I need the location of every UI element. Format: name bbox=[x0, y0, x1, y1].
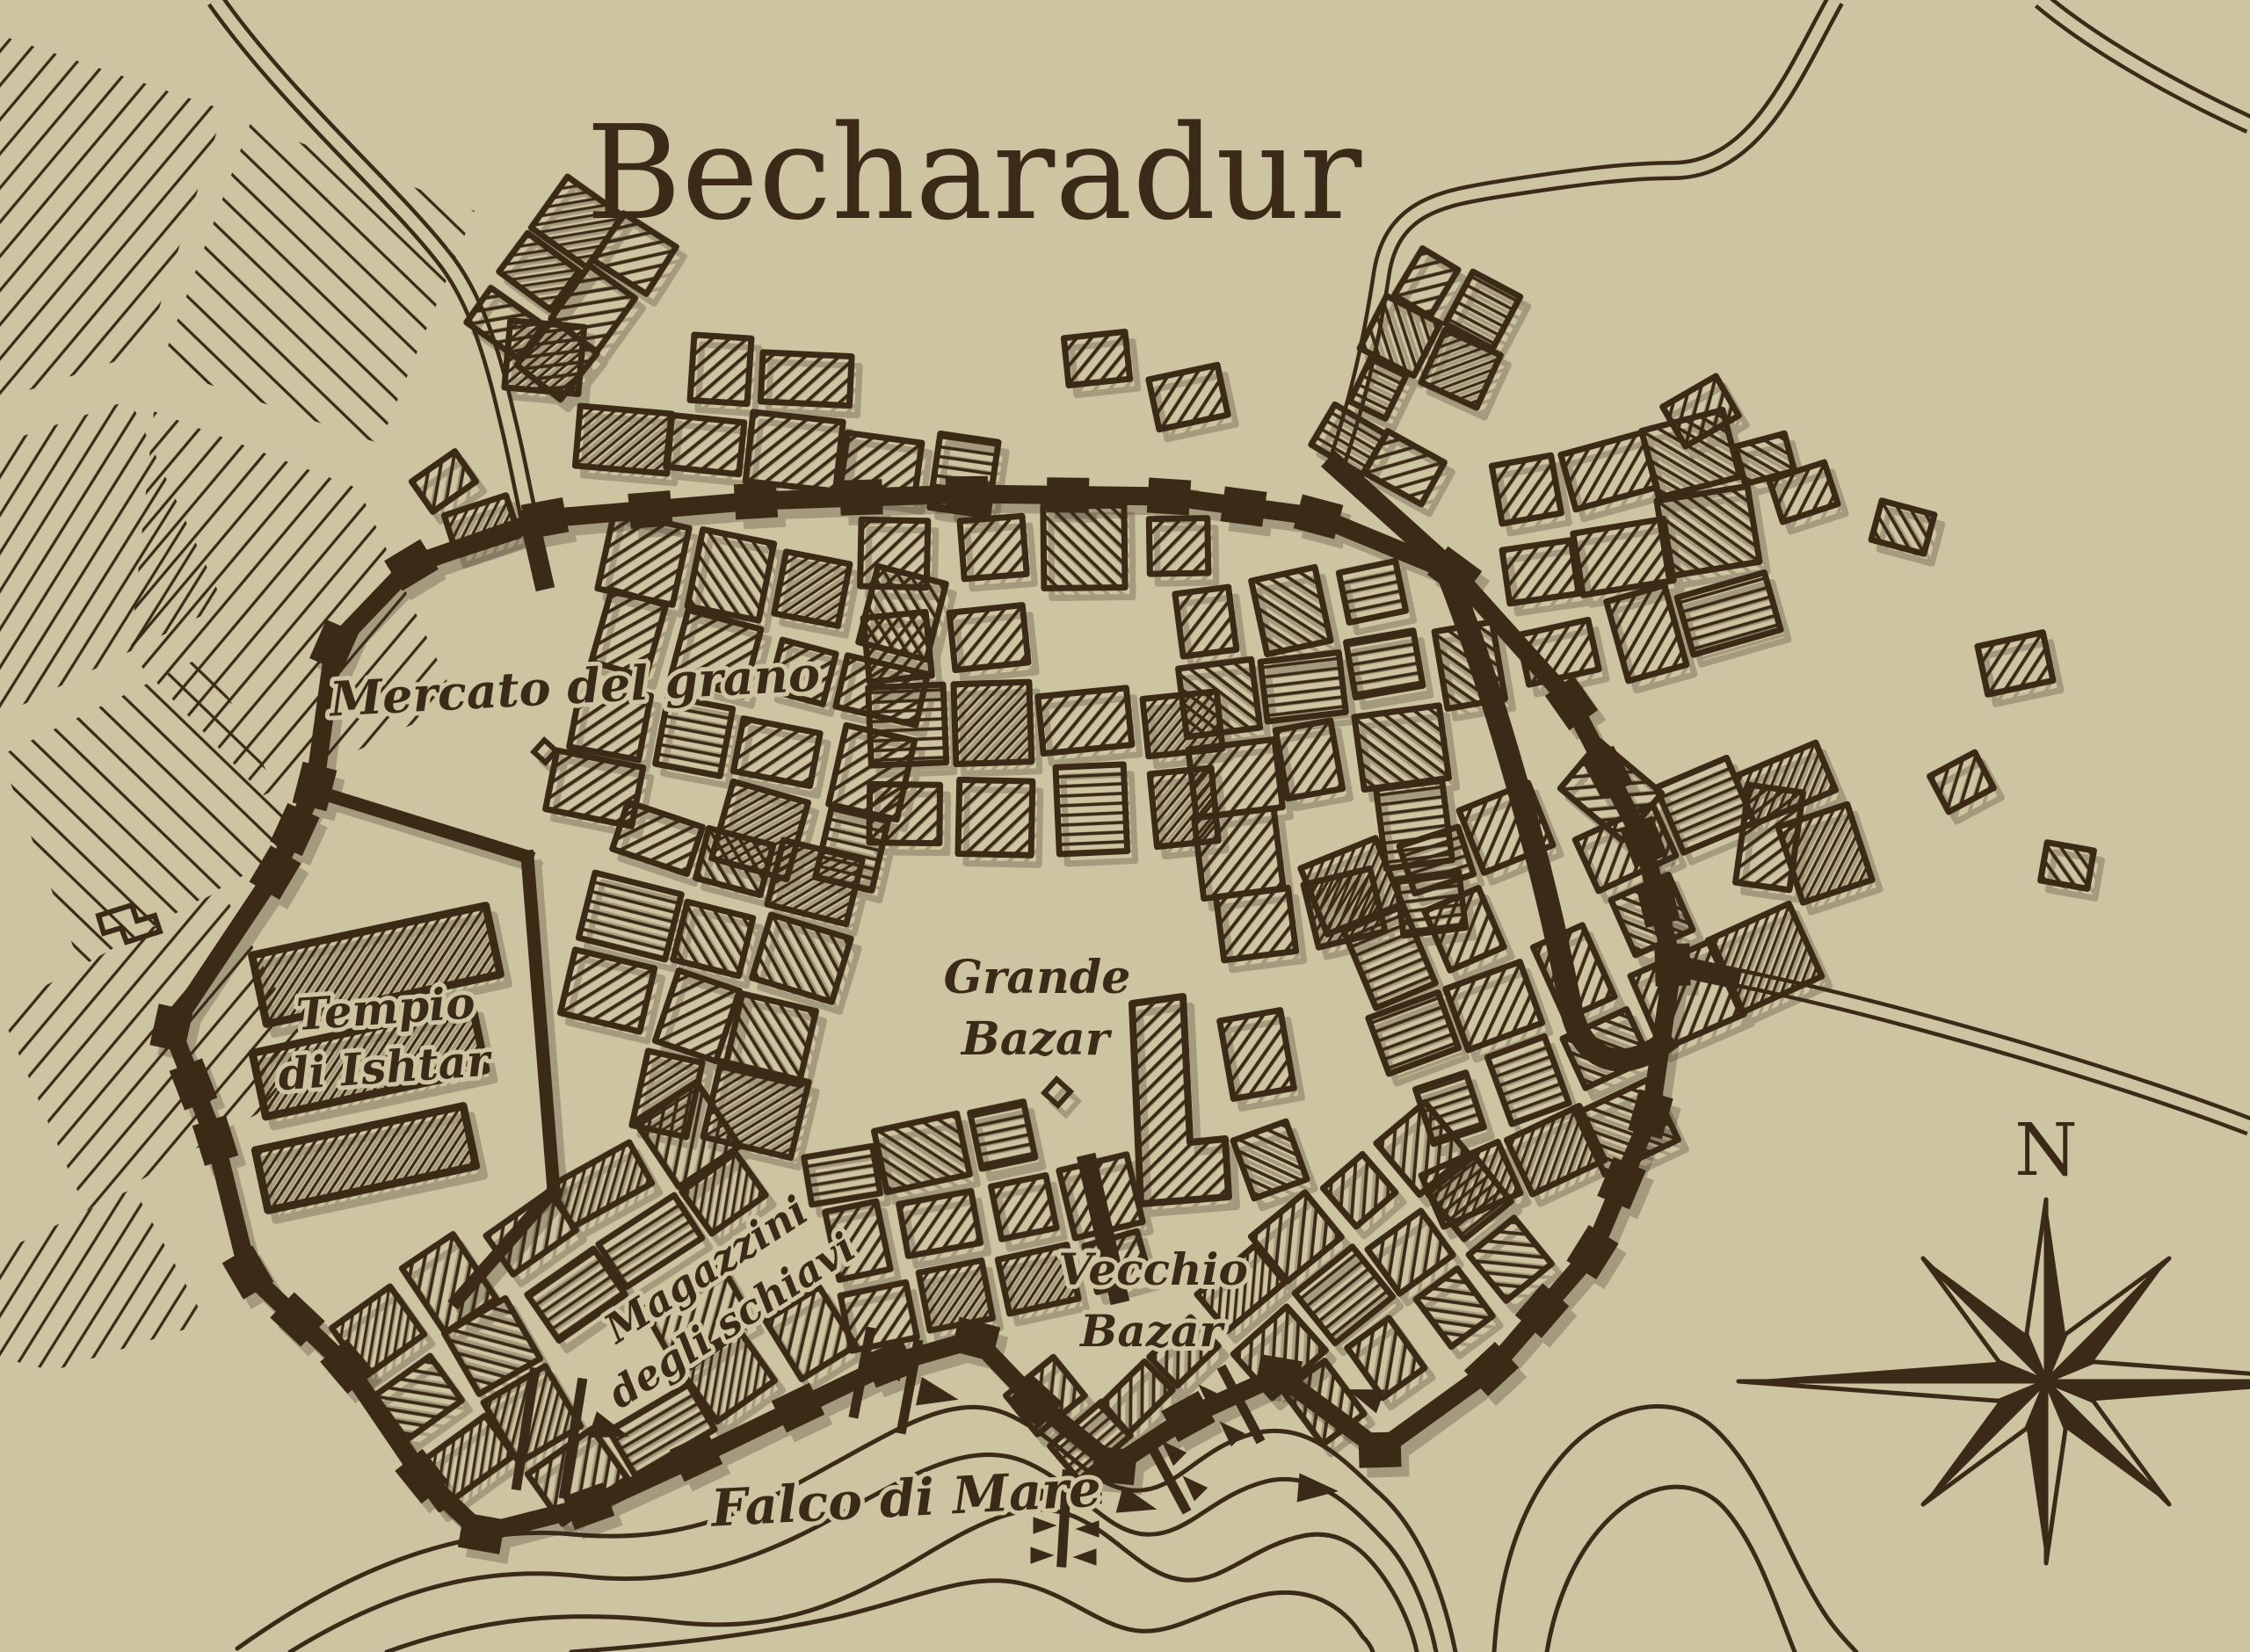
building-block bbox=[703, 1061, 809, 1158]
water-contour bbox=[1547, 1487, 1795, 1652]
building-block bbox=[733, 719, 820, 786]
temple-building bbox=[255, 1106, 475, 1211]
building-block bbox=[1252, 567, 1331, 654]
road-surface bbox=[1336, 0, 1835, 466]
wall-tower bbox=[628, 490, 672, 529]
wall-tower bbox=[734, 482, 778, 520]
building-block bbox=[687, 529, 773, 620]
building-block bbox=[1871, 501, 1934, 554]
building-block bbox=[958, 779, 1033, 855]
building-block bbox=[1657, 486, 1760, 576]
place-label: Vecchio bbox=[1058, 1243, 1248, 1295]
wall-tower bbox=[1221, 486, 1267, 526]
building-block bbox=[804, 1146, 881, 1205]
boat-icon bbox=[1297, 1473, 1340, 1505]
road-outline bbox=[1336, 0, 1835, 466]
building-block bbox=[868, 685, 947, 765]
building-block bbox=[1275, 721, 1342, 799]
building-block bbox=[954, 682, 1032, 764]
building-block bbox=[578, 873, 681, 960]
building-block bbox=[575, 406, 671, 474]
building-block bbox=[760, 352, 852, 406]
place-label: Bazar bbox=[1078, 1305, 1225, 1357]
water-contour bbox=[571, 1581, 1373, 1652]
wall-tower bbox=[458, 1512, 505, 1554]
building-block bbox=[1043, 505, 1125, 588]
building-block bbox=[874, 1113, 969, 1192]
building-block bbox=[1059, 1155, 1143, 1238]
building-block bbox=[1149, 365, 1228, 429]
building-block bbox=[1188, 739, 1282, 817]
building-block bbox=[1677, 573, 1781, 656]
building-block bbox=[673, 902, 753, 975]
map-canvas: Mercato del granoTempiodi IshtarGrandeBa… bbox=[0, 0, 2250, 1652]
building-block bbox=[918, 1260, 992, 1330]
map-title: Becharadur bbox=[586, 98, 1362, 249]
compass-north-label: N bbox=[2014, 1109, 2078, 1192]
wall-tower bbox=[1358, 1431, 1401, 1467]
inner-wall bbox=[315, 791, 527, 857]
compass-point-dark bbox=[1738, 1362, 2046, 1381]
building-block bbox=[991, 1176, 1056, 1240]
wall-tower bbox=[951, 1317, 1000, 1362]
building-block bbox=[1056, 764, 1128, 854]
building-block bbox=[1194, 808, 1284, 899]
building-block bbox=[1220, 1011, 1295, 1099]
wall-tower bbox=[1147, 477, 1191, 515]
building-block bbox=[1736, 785, 1804, 890]
building-block bbox=[1416, 1269, 1492, 1347]
boat-icon bbox=[1073, 1548, 1097, 1565]
building-block bbox=[899, 1191, 981, 1256]
building-block bbox=[550, 1142, 652, 1228]
building-block bbox=[869, 784, 940, 843]
building-block bbox=[1260, 653, 1346, 721]
building-block bbox=[1346, 631, 1422, 698]
building-block bbox=[1038, 688, 1132, 754]
building-block bbox=[1149, 518, 1208, 575]
building-block bbox=[1216, 888, 1296, 960]
building-block bbox=[1063, 331, 1129, 385]
building-block bbox=[2041, 843, 2094, 889]
building-block bbox=[960, 516, 1027, 579]
field-patch bbox=[160, 123, 475, 444]
building-block bbox=[1434, 622, 1505, 709]
building-block bbox=[1487, 1036, 1569, 1124]
field-patch bbox=[0, 1188, 207, 1371]
building-block bbox=[1978, 633, 2053, 695]
building-block bbox=[752, 915, 851, 1002]
place-label: Bazar bbox=[960, 1012, 1113, 1066]
building-block bbox=[863, 612, 932, 682]
building-block bbox=[1339, 561, 1405, 622]
place-label: Grande bbox=[944, 951, 1131, 1004]
wall-tower bbox=[1255, 1354, 1303, 1396]
building-block bbox=[949, 605, 1028, 670]
building-block bbox=[1502, 540, 1579, 604]
boat-icon bbox=[1031, 1547, 1055, 1563]
building-block bbox=[632, 1051, 702, 1137]
wall-tower bbox=[1654, 943, 1690, 986]
wall-tower bbox=[839, 479, 882, 516]
inner-wall bbox=[527, 857, 554, 1191]
building-block bbox=[1233, 1121, 1307, 1199]
building-block bbox=[1533, 925, 1615, 1019]
wall-tower bbox=[1294, 494, 1344, 539]
building-block bbox=[745, 412, 843, 491]
building-block bbox=[1179, 659, 1260, 736]
building-block bbox=[1446, 961, 1542, 1049]
bazar-hall-building bbox=[1132, 996, 1229, 1204]
building-block bbox=[774, 552, 850, 626]
antique-city-map: Mercato del granoTempiodi IshtarGrandeBa… bbox=[0, 0, 2250, 1652]
building-block bbox=[1175, 587, 1237, 656]
building-block bbox=[970, 1102, 1035, 1169]
building-block bbox=[1354, 706, 1449, 790]
district bbox=[858, 500, 1226, 860]
compass-point-light bbox=[1738, 1381, 2046, 1401]
building-block bbox=[1930, 752, 1994, 812]
building-block bbox=[411, 452, 475, 512]
building-block bbox=[690, 335, 751, 404]
building-block bbox=[1347, 1318, 1425, 1398]
compass-rose: N bbox=[1738, 1109, 2250, 1563]
building-block bbox=[1492, 455, 1561, 524]
wall-tower bbox=[946, 476, 988, 512]
water-contour bbox=[1494, 1406, 1856, 1652]
well-marker-icon bbox=[1044, 1079, 1071, 1105]
wall-tower bbox=[1047, 477, 1090, 513]
building-block bbox=[666, 415, 744, 474]
building-block bbox=[860, 519, 928, 587]
building-block bbox=[560, 950, 654, 1032]
building-block bbox=[613, 802, 703, 874]
building-block bbox=[1607, 585, 1687, 681]
building-block bbox=[1323, 1154, 1396, 1226]
